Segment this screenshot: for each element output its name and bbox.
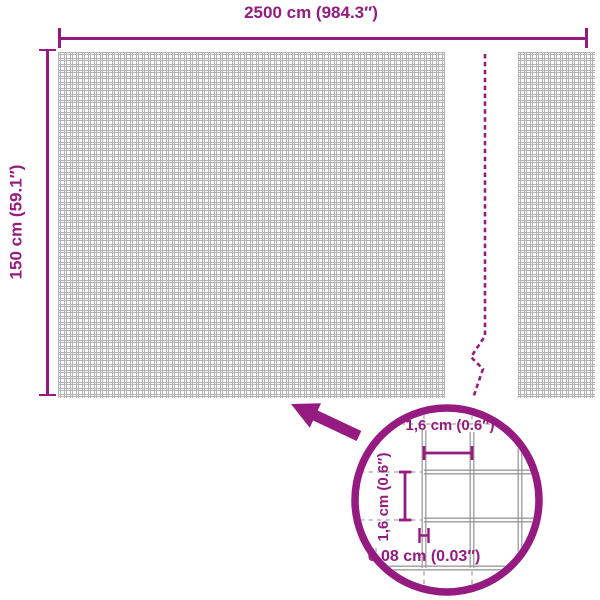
zoom-callout-arrow-icon (291, 403, 361, 441)
panel-break-dashed-line (471, 54, 485, 398)
detail-mesh-width-label: 1,6 cm (0.6″) (406, 418, 495, 435)
diagram-graphics (0, 0, 600, 600)
detail-mesh-height-label: 1,6 cm (0.6″) (376, 453, 393, 542)
detail-wire-thickness-label: 0,08 cm (0.03″) (368, 548, 481, 566)
product-dimension-diagram: 2500 cm (984.3″) 150 cm (59.1″) (0, 0, 600, 600)
